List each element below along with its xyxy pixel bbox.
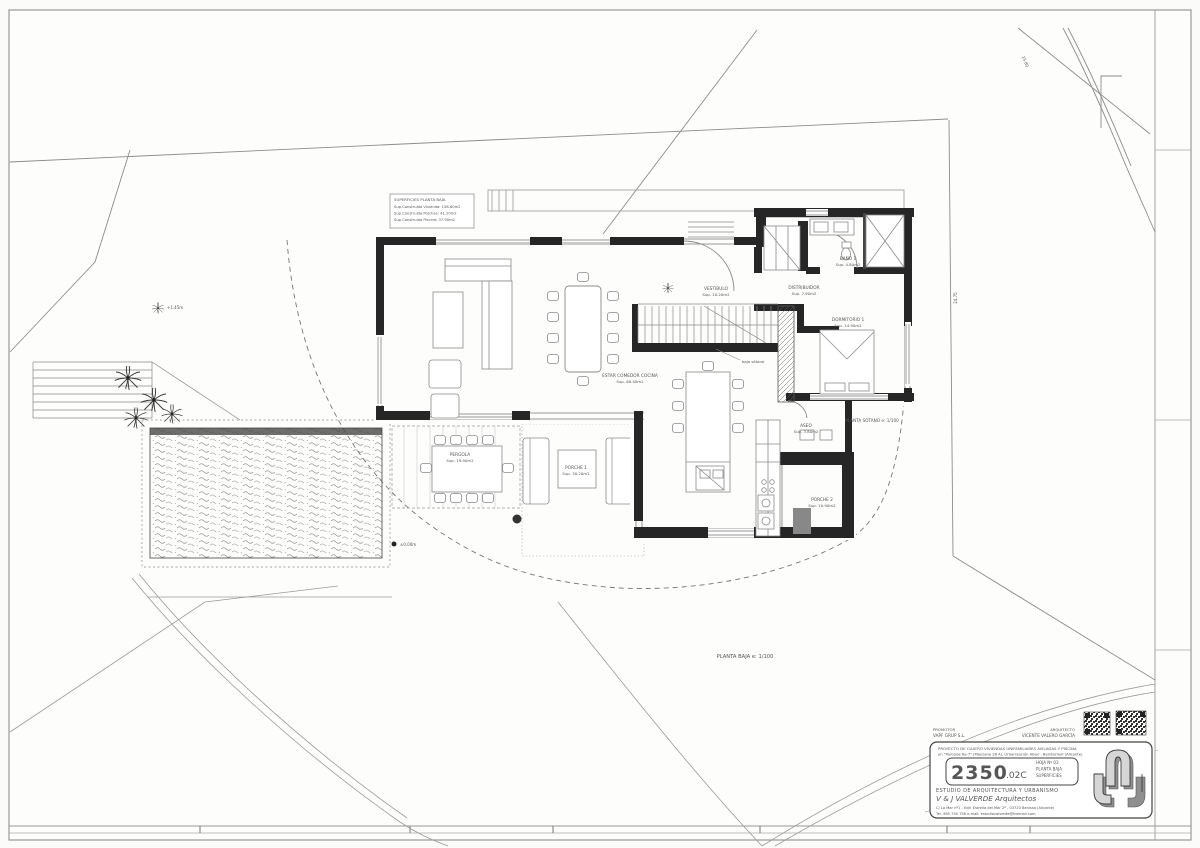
room-area-dormitorio1: Sup. 14.90m2 [834, 323, 862, 328]
room-area-porche1: Sup. 30.20m2 [562, 471, 590, 476]
porch-plant [513, 515, 522, 524]
armchair [429, 360, 461, 388]
stair-direction-label: baja sótano [742, 359, 765, 364]
project-title-line2: en "Parcelas 6a-7" (Manzana 28 A), Urban… [938, 753, 1083, 757]
studio-address-line1: C/ La Mar nº1 - Edif. Estrella del Mar 2… [936, 806, 1055, 810]
stair-shaft-hatched-wall [778, 306, 794, 402]
room-area-porche2: Sup. 10.90m2 [808, 503, 836, 508]
studio-address-line2: Tel. 965 730 758 e-mail: estudiovalverde… [935, 812, 1036, 816]
room-area-vestibulo: Sup. 10.20m2 [702, 292, 730, 297]
legend-line: Sup.Construida Piscina: 37.90m2 [394, 218, 455, 222]
sofa-l-top [445, 259, 511, 281]
promoter-name: VAPF GRUP S.L. [933, 733, 965, 738]
floor-plan-sheet: +1.45m ±0.00m [0, 0, 1200, 848]
coffee-table [433, 292, 463, 348]
legend-box: SUPERFICIES PLANTA BAJA Sup.Construida V… [390, 194, 474, 228]
legend-title: SUPERFICIES PLANTA BAJA [394, 197, 446, 202]
porch-sofa-left [523, 438, 549, 504]
sheet-info-2: PLANTA BAJA [1036, 767, 1062, 772]
porch2-slab [793, 508, 811, 534]
studio-name-line2: V & J VALVERDE Arquitectos [936, 794, 1037, 803]
pillow [825, 383, 845, 391]
sheet-info-3: SUPERFICIES [1036, 773, 1062, 778]
level-marker-pool-dot [392, 542, 397, 547]
promoter-label: PROMOTOR [933, 727, 955, 732]
plan-scale-label: PLANTA BAJA e: 1/100 [717, 654, 774, 660]
porch-sofa-right [606, 438, 632, 504]
architect-name: VICENTE VALERO GARCÍA [1022, 733, 1075, 738]
dining-table [565, 286, 601, 372]
sheet-frame [9, 10, 1191, 840]
level-marker-pool: ±0.00m [400, 542, 416, 547]
legend-line: Sup.Construida Porches: 41.10m2 [394, 212, 457, 216]
plan-drawing: +1.45m ±0.00m [0, 0, 1200, 848]
project-title-line1: PROYECTO DE CUATRO VIVIENDAS UNIFAMILIAR… [938, 746, 1077, 751]
room-area-estar: Sup. 60.40m2 [616, 379, 644, 384]
sheet-info-1: HOJA Nº 03 [1036, 760, 1059, 765]
room-area-aseo: Sup. 3.80m2 [794, 429, 819, 434]
sofa-l-side [482, 281, 512, 369]
drawing-number-suffix: .02C [1006, 771, 1027, 781]
architect-label: ARQUITECTO [1050, 727, 1075, 732]
room-area-distribuidor: Sup. 7.90m2 [792, 291, 817, 296]
drawing-number: 2350 [951, 762, 1008, 784]
room-area-pergola: Sup. 19.90m2 [446, 458, 474, 463]
pool-infinity-edge [150, 428, 382, 435]
legend-line: Sup.Construida Vivienda: 158.80m2 [394, 205, 461, 209]
bedroom-1 [820, 330, 874, 394]
armchair-2 [431, 394, 459, 418]
level-marker-terrace: +1.45m [167, 305, 183, 310]
room-area-bano1: Sup. 4.80m2 [836, 262, 861, 267]
cooktop-burner [762, 480, 767, 485]
room-label-bano1: BAÑO 1 [840, 255, 857, 262]
pool [142, 420, 390, 567]
vestibule-closet [764, 226, 800, 270]
toilet [842, 242, 851, 248]
basement-scale-label: PLANTA SÓTANO e: 1/100 [845, 418, 899, 423]
boundary-dim-east: 24.75 [953, 292, 958, 304]
